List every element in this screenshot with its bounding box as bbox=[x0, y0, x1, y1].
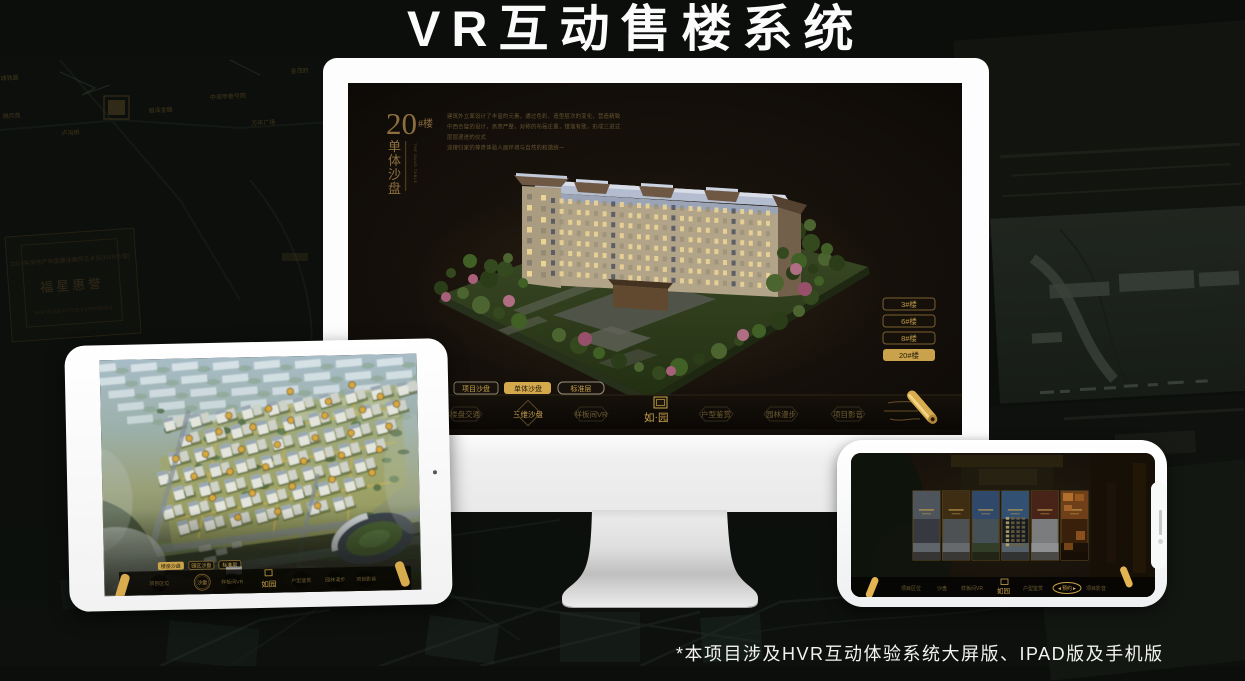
svg-text:如园: 如园 bbox=[997, 586, 1010, 595]
svg-text:沙: 沙 bbox=[388, 167, 401, 182]
svg-text:标准层: 标准层 bbox=[571, 384, 592, 393]
svg-text:金茂府: 金茂府 bbox=[290, 66, 308, 75]
svg-text:◄预约►: ◄预约► bbox=[1057, 585, 1077, 592]
svg-text:样板间VR: 样板间VR bbox=[961, 585, 983, 592]
svg-text:如园: 如园 bbox=[261, 579, 276, 589]
svg-text:园区沙盘: 园区沙盘 bbox=[191, 562, 211, 569]
svg-text:园林漫步: 园林漫步 bbox=[325, 576, 345, 583]
svg-text:中西合璧的设计，高贵严整，对称的布局庄重，错落有致，形成三进: 中西合璧的设计，高贵严整，对称的布局庄重，错落有致，形成三进式 bbox=[447, 123, 621, 131]
svg-text:中海甲叁号院: 中海甲叁号院 bbox=[210, 92, 246, 102]
svg-text:20: 20 bbox=[386, 106, 417, 141]
svg-text:户型鉴赏: 户型鉴赏 bbox=[701, 409, 731, 419]
svg-text:样板间VR: 样板间VR bbox=[221, 578, 243, 585]
svg-text:体: 体 bbox=[388, 153, 401, 168]
svg-text:沙盘: 沙盘 bbox=[937, 585, 947, 592]
svg-text:项目区位: 项目区位 bbox=[901, 585, 921, 592]
svg-text:THE SAND TABLE: THE SAND TABLE bbox=[413, 143, 418, 184]
svg-text:单: 单 bbox=[388, 139, 401, 154]
svg-text:园林漫步: 园林漫步 bbox=[766, 409, 796, 419]
svg-text:单体沙盘: 单体沙盘 bbox=[514, 384, 542, 393]
svg-text:楼座沙盘: 楼座沙盘 bbox=[161, 563, 181, 570]
svg-text:8#楼: 8#楼 bbox=[901, 333, 917, 343]
svg-text:层层递进的仪式: 层层递进的仪式 bbox=[447, 133, 487, 141]
svg-text:6#楼: 6#楼 bbox=[901, 316, 917, 326]
svg-text:建筑外立面设计了丰富的元素，通过色彩、造型层次的变化，营造精: 建筑外立面设计了丰富的元素，通过色彩、造型层次的变化，营造精致 bbox=[447, 112, 621, 120]
svg-text:迎接归家的尊贵体验人居环境与自然的和谐统一: 迎接归家的尊贵体验人居环境与自然的和谐统一 bbox=[447, 144, 565, 152]
svg-text:项目影音: 项目影音 bbox=[1086, 585, 1106, 592]
svg-text:晓月苑: 晓月苑 bbox=[2, 111, 20, 120]
svg-text:项目区位: 项目区位 bbox=[149, 580, 169, 587]
svg-text:福星惠誉: 福星惠誉 bbox=[40, 276, 105, 295]
svg-text:如·园: 如·园 bbox=[644, 411, 669, 424]
svg-text:户型鉴赏: 户型鉴赏 bbox=[1023, 585, 1043, 592]
svg-text:城铁路: 城铁路 bbox=[0, 73, 18, 82]
svg-text:项目影音: 项目影音 bbox=[833, 409, 863, 419]
svg-text:3#楼: 3#楼 bbox=[901, 299, 917, 309]
svg-text:2019年房地产年度最佳案例艺术奖(HVR沙盘): 2019年房地产年度最佳案例艺术奖(HVR沙盘) bbox=[10, 252, 130, 268]
svg-text:盘: 盘 bbox=[388, 181, 401, 196]
svg-text:项目影音: 项目影音 bbox=[356, 576, 376, 583]
svg-text:卢沟桥: 卢沟桥 bbox=[61, 128, 79, 137]
svg-text:楼盘交通: 楼盘交通 bbox=[450, 409, 480, 419]
svg-text:样板间VR: 样板间VR bbox=[575, 409, 609, 419]
svg-text:万年广场: 万年广场 bbox=[251, 118, 275, 127]
svg-text:沙盘: 沙盘 bbox=[197, 579, 207, 586]
svg-text:项目沙盘: 项目沙盘 bbox=[462, 384, 490, 393]
svg-text:20#楼: 20#楼 bbox=[899, 350, 920, 360]
svg-text:HVR INTERACTIVE EXPERIENCE: HVR INTERACTIVE EXPERIENCE bbox=[34, 305, 114, 317]
svg-text:户型鉴赏: 户型鉴赏 bbox=[291, 577, 311, 584]
svg-text:#楼: #楼 bbox=[418, 117, 433, 130]
svg-text:丽泽金融: 丽泽金融 bbox=[148, 105, 172, 114]
